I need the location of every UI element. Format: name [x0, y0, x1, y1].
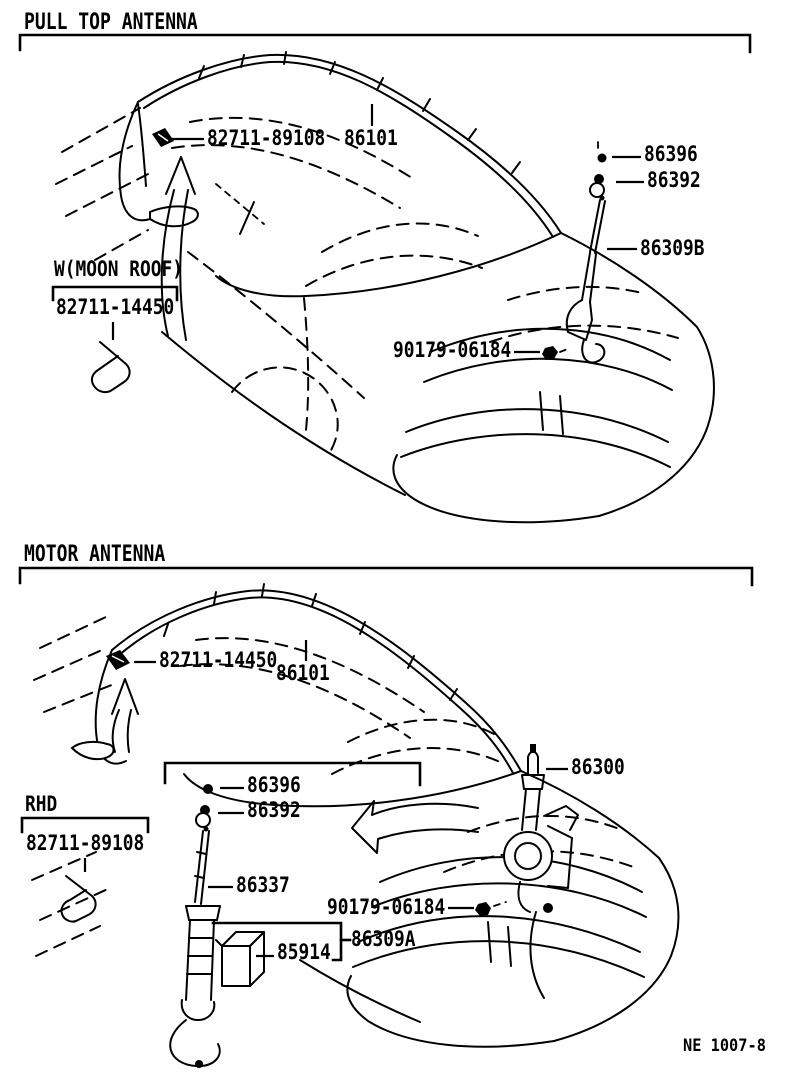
- variant-note-rhd: RHD: [25, 794, 57, 815]
- part-label-90179-06184-2: 90179-06184: [327, 897, 445, 918]
- part-label-82711-14450: 82711-14450: [56, 297, 174, 318]
- bottom-mounting-bolt-icon: [475, 902, 506, 916]
- section-title-pull-top-antenna: PULL TOP ANTENNA: [24, 12, 198, 34]
- part-label-86396: 86396: [644, 144, 698, 165]
- part-label-86337: 86337: [236, 875, 290, 896]
- part-label-86300: 86300: [571, 757, 625, 778]
- bottom-curved-up-arrow-icon: [112, 679, 138, 752]
- motor-car-drawing: [32, 584, 678, 1047]
- part-label-86396-2: 86396: [247, 775, 301, 796]
- bottom-grommet-icon: [196, 805, 210, 827]
- part-label-86101: 86101: [344, 128, 398, 149]
- rhd-variant-bracket: [22, 818, 148, 832]
- antenna-cord-clip-icon: [152, 128, 174, 147]
- parts-diagram-page: PULL TOP ANTENNA 82711-89108 86101 86396…: [0, 0, 792, 1076]
- variant-note-moonroof: W(MOON ROOF): [54, 259, 183, 280]
- nut-icon: [598, 142, 607, 163]
- antenna-mast-icon: [567, 196, 605, 363]
- curved-left-arrow-icon: [352, 801, 478, 853]
- moonroof-clip-icon: [92, 342, 130, 392]
- bottom-nut-icon: [203, 784, 213, 794]
- part-label-86392-2: 86392: [247, 800, 301, 821]
- section-bracket-top: [20, 35, 750, 52]
- section-title-motor-antenna: MOTOR ANTENNA: [24, 544, 165, 566]
- part-label-85914: 85914: [277, 942, 331, 963]
- telescopic-mast-icon: [170, 827, 220, 1069]
- page-code: NE 1007-8: [683, 1038, 766, 1055]
- section-bracket-bottom: [20, 568, 752, 585]
- part-label-90179-06184: 90179-06184: [393, 340, 511, 361]
- part-label-86309A: 86309A: [351, 929, 415, 950]
- motor-antenna-assembly-icon: [504, 744, 578, 998]
- mounting-bolt-icon: [542, 346, 570, 360]
- part-label-86309B: 86309B: [640, 238, 704, 259]
- part-label-82711-89108: 82711-89108: [207, 128, 325, 149]
- relay-box-icon: [216, 932, 264, 986]
- grommet-icon: [590, 174, 604, 197]
- rhd-clip-icon: [61, 876, 95, 922]
- part-label-86392: 86392: [647, 170, 701, 191]
- bottom-cord-clip-icon: [106, 650, 130, 670]
- part-label-86101-2: 86101: [276, 663, 330, 684]
- part-label-82711-89108-2: 82711-89108: [26, 833, 144, 854]
- part-label-82711-14450-2: 82711-14450: [159, 650, 277, 671]
